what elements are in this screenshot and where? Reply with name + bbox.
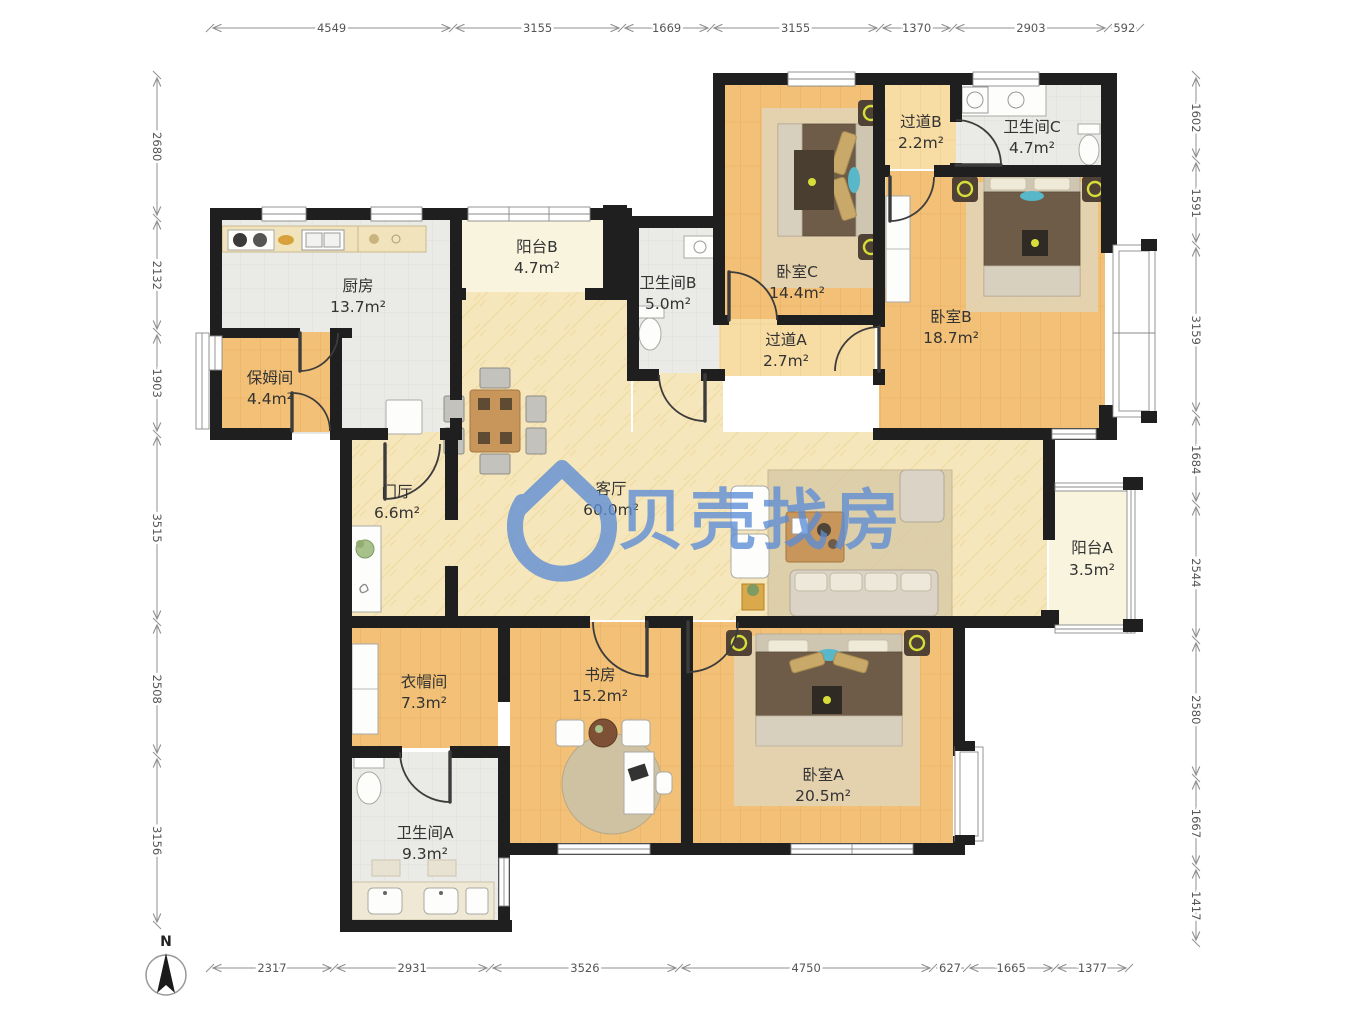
cloak-label: 衣帽间	[401, 673, 448, 691]
dim-value: 3155	[781, 21, 810, 35]
speaker-icon	[904, 630, 930, 656]
dim-bottom: 2317 2931 3526 4750 627 1665 1377	[206, 961, 1133, 975]
dim-value: 3156	[150, 826, 164, 855]
bath-a-label: 卫生间A	[396, 824, 454, 842]
bedroom-c-label: 卧室C	[776, 263, 818, 281]
bath-a-area: 9.3m²	[402, 845, 448, 863]
cloak-wardrobe	[352, 644, 378, 734]
dim-value: 1591	[1189, 189, 1203, 218]
dim-value: 627	[939, 961, 961, 975]
bath-b-area: 5.0m²	[645, 295, 691, 313]
balcony-a-label: 阳台A	[1071, 539, 1113, 557]
dim-value: 1417	[1189, 891, 1203, 920]
bath-c-label: 卫生间C	[1003, 118, 1060, 136]
dining-table	[470, 390, 520, 452]
bay-window-icon	[196, 333, 209, 429]
dim-left: 2680 2132 1903 3515 2508 3156	[150, 71, 164, 929]
bath-b-label: 卫生间B	[639, 274, 696, 292]
dim-right: 1602 1591 3159 1684 2544 2580 1667 1417	[1189, 71, 1203, 947]
dim-value: 2903	[1016, 21, 1045, 35]
sink-basin-icon	[324, 233, 340, 247]
toilet-icon	[1079, 135, 1099, 165]
dim-value: 3526	[570, 961, 599, 975]
floor-plan-svg: 厨房 13.7m² 保姆间 4.4m² 阳台B 4.7m² 卫生间B 5.0m²…	[0, 0, 1351, 1011]
dim-value: 2580	[1189, 695, 1203, 724]
hallway-b-area: 2.2m²	[898, 134, 944, 152]
dim-top: 4549 3155 1669 3155 1370 2903 592	[206, 21, 1144, 35]
bath-c-area: 4.7m²	[1009, 139, 1055, 157]
fridge-icon	[386, 400, 422, 434]
dim-value: 2132	[150, 261, 164, 290]
foyer-label: 门厅	[381, 483, 412, 501]
armchair-icon	[900, 470, 944, 522]
window-icon	[209, 336, 222, 370]
compass-north-label: N	[160, 934, 172, 950]
sink-basin-icon	[306, 233, 322, 247]
vanity-counter	[958, 84, 1046, 116]
dim-value: 1665	[997, 961, 1026, 975]
dim-value: 1370	[902, 21, 931, 35]
stove-burner-icon	[233, 233, 247, 247]
stove-burner-icon	[253, 233, 267, 247]
kitchen-area: 13.7m²	[330, 298, 386, 316]
stool	[656, 772, 672, 794]
study-label: 书房	[584, 666, 615, 684]
dim-value: 1903	[150, 369, 164, 398]
bedroom-c-bed	[762, 100, 886, 288]
toilet-icon	[357, 772, 381, 804]
dim-value: 4549	[317, 21, 346, 35]
compass: N	[146, 934, 186, 995]
dim-value: 3155	[523, 21, 552, 35]
side-table	[589, 719, 617, 747]
dim-value: 1602	[1189, 103, 1203, 132]
balcony-b-label: 阳台B	[516, 238, 558, 256]
bedroom-b-bay-window	[1113, 239, 1157, 423]
dim-value: 4750	[792, 961, 821, 975]
dim-value: 1669	[652, 21, 681, 35]
hallway-b-label: 过道B	[900, 113, 942, 131]
floor-plan-screenshot: 厨房 13.7m² 保姆间 4.4m² 阳台B 4.7m² 卫生间B 5.0m²…	[0, 0, 1351, 1011]
dim-value: 2544	[1189, 558, 1203, 587]
nanny-area: 4.4m²	[247, 390, 293, 408]
foyer-cabinet	[349, 526, 381, 612]
living-floor-2	[633, 373, 723, 434]
bedroom-a-area: 20.5m²	[795, 787, 851, 805]
dim-value: 2317	[257, 961, 286, 975]
speaker-icon	[952, 176, 978, 202]
hallway-a-area: 2.7m²	[763, 352, 809, 370]
toilet-icon	[639, 318, 661, 350]
nanny-label: 保姆间	[247, 369, 294, 387]
dim-value: 592	[1113, 21, 1135, 35]
dim-value: 3159	[1189, 316, 1203, 345]
balcony-b-area: 4.7m²	[514, 259, 560, 277]
bedroom-b-label: 卧室B	[930, 308, 972, 326]
dim-value: 2931	[398, 961, 427, 975]
desk	[624, 752, 654, 814]
dim-value: 3515	[150, 513, 164, 542]
plant-icon	[747, 584, 759, 596]
cloak-area: 7.3m²	[401, 694, 447, 712]
hallway-a-label: 过道A	[765, 331, 807, 349]
dim-value: 1377	[1078, 961, 1107, 975]
bedroom-a-bay-window	[955, 741, 983, 845]
watermark-brand-text: 贝壳找房	[618, 482, 906, 559]
foyer-area: 6.6m²	[374, 504, 420, 522]
bedroom-b-area: 18.7m²	[923, 329, 979, 347]
bedroom-a-label: 卧室A	[802, 766, 844, 784]
balcony-a-floor	[1049, 487, 1131, 627]
sink-icon	[684, 236, 716, 258]
dim-value: 2680	[150, 132, 164, 161]
chair-icon	[556, 720, 584, 746]
kitchen-label: 厨房	[342, 277, 373, 295]
dim-value: 1684	[1189, 445, 1203, 474]
bedroom-c-area: 14.4m²	[769, 284, 825, 302]
speaker-icon	[726, 630, 752, 656]
dim-value: 2508	[150, 675, 164, 704]
study-area: 15.2m²	[572, 687, 628, 705]
balcony-a-area: 3.5m²	[1069, 561, 1115, 579]
dim-value: 1667	[1189, 809, 1203, 838]
chair-icon	[622, 720, 650, 746]
